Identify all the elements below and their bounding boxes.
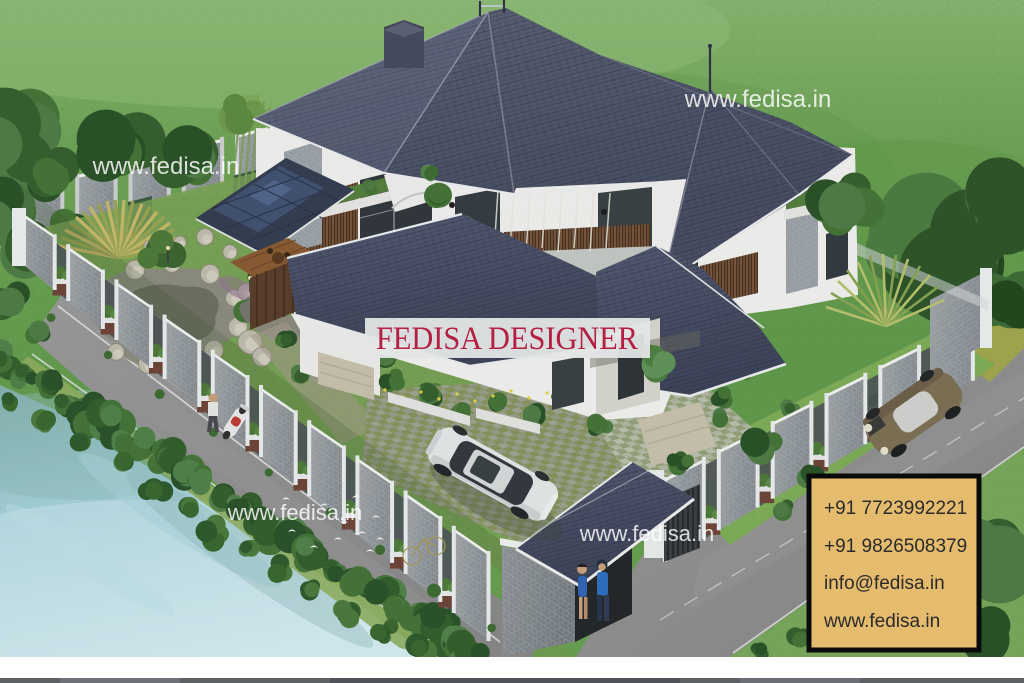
svg-text:www.fedisa.in: www.fedisa.in [684,86,832,113]
svg-text:www.fedisa.in: www.fedisa.in [227,500,363,525]
svg-text:+91 9826508379: +91 9826508379 [824,536,967,557]
svg-text:+91 7723992221: +91 7723992221 [824,498,967,519]
svg-text:FEDISA DESIGNER: FEDISA DESIGNER [376,321,638,357]
svg-text:www.fedisa.in: www.fedisa.in [579,521,715,546]
svg-text:www.fedisa.in: www.fedisa.in [823,611,940,632]
svg-text:info@fedisa.in: info@fedisa.in [824,573,945,594]
svg-text:www.fedisa.in: www.fedisa.in [92,153,240,180]
